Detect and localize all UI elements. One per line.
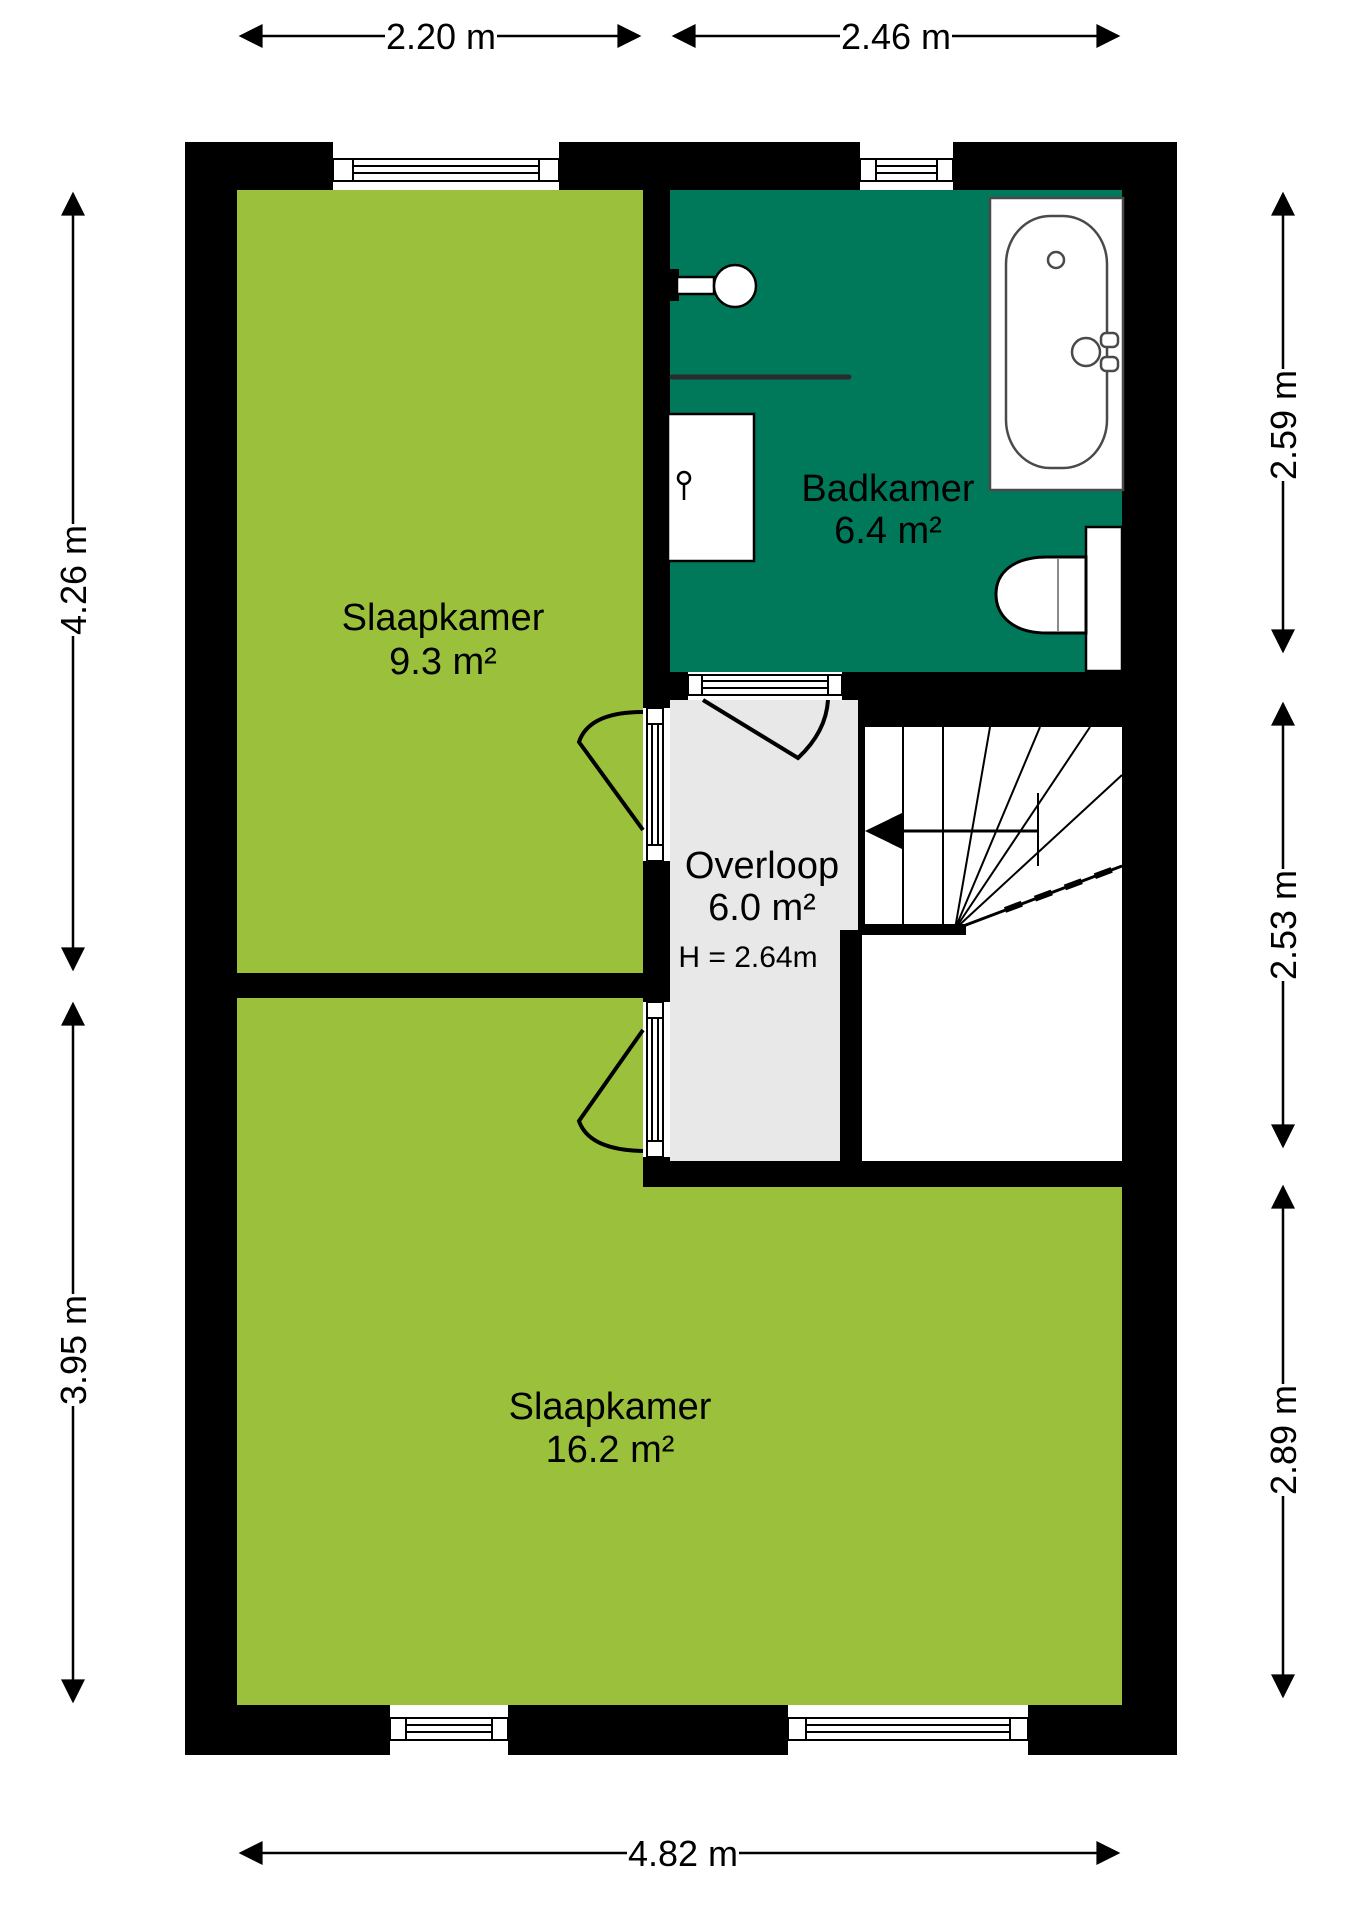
wall-left (185, 142, 237, 1755)
room-label-bedroom-small: Slaapkamer (342, 597, 545, 639)
window-top-right (860, 159, 953, 181)
stair-edge (858, 727, 865, 930)
wall-between-bedrooms (237, 973, 670, 998)
dim-left-upper: 4.26 m (53, 194, 94, 969)
wall-stairwell-south (643, 1161, 1122, 1187)
dim-label-right-middle: 2.53 m (1263, 870, 1304, 980)
door-frame-bedroom-small (647, 708, 663, 861)
dim-label-left-lower: 3.95 m (53, 1295, 94, 1405)
dim-label-bottom: 4.82 m (628, 1833, 738, 1874)
wall-right (1122, 142, 1177, 1755)
floorplan: Slaapkamer 9.3 m² Badkamer 6.4 m² Overlo… (0, 0, 1358, 1920)
room-area-landing: 6.0 m² (708, 887, 816, 929)
room-label-bathroom: Badkamer (801, 468, 975, 510)
room-area-bedroom-small: 9.3 m² (389, 641, 497, 683)
dim-bottom: 4.82 m (241, 1833, 1118, 1874)
dim-right-upper: 2.59 m (1263, 194, 1304, 651)
bathtub-icon (990, 198, 1123, 490)
dim-label-right-lower: 2.89 m (1263, 1385, 1304, 1495)
window-bottom-left (390, 1718, 508, 1740)
window-bottom-right (788, 1718, 1028, 1740)
room-label-bedroom-large: Slaapkamer (509, 1386, 712, 1428)
dim-label-right-upper: 2.59 m (1263, 370, 1304, 480)
wall-landing-stairwell (840, 930, 862, 1187)
door-frame-bedroom-large (647, 1002, 663, 1157)
room-area-bathroom: 6.4 m² (834, 510, 942, 552)
bedroom-small-floor (237, 190, 643, 973)
dim-top-right: 2.46 m (674, 16, 1118, 57)
wall-bathroom-south-right (858, 672, 1122, 727)
dim-top-left: 2.20 m (241, 16, 639, 57)
door-frame-bathroom (688, 675, 842, 695)
window-top-left (333, 159, 559, 181)
room-label-landing: Overloop (685, 845, 839, 887)
room-height-landing: H = 2.64m (678, 941, 817, 974)
dim-label-left-upper: 4.26 m (53, 525, 94, 635)
landing-floor (670, 697, 858, 1167)
room-area-bedroom-large: 16.2 m² (546, 1429, 675, 1471)
dim-label-top-left: 2.20 m (386, 16, 496, 57)
dim-right-middle: 2.53 m (1263, 704, 1304, 1146)
dim-label-top-right: 2.46 m (841, 16, 951, 57)
dim-left-lower: 3.95 m (53, 1004, 94, 1701)
dim-right-lower: 2.89 m (1263, 1187, 1304, 1696)
vanity-cabinet-icon (668, 414, 754, 561)
stair-winder-base (858, 924, 966, 935)
staircase (858, 727, 1122, 935)
floorplan-svg: Slaapkamer 9.3 m² Badkamer 6.4 m² Overlo… (0, 0, 1358, 1920)
